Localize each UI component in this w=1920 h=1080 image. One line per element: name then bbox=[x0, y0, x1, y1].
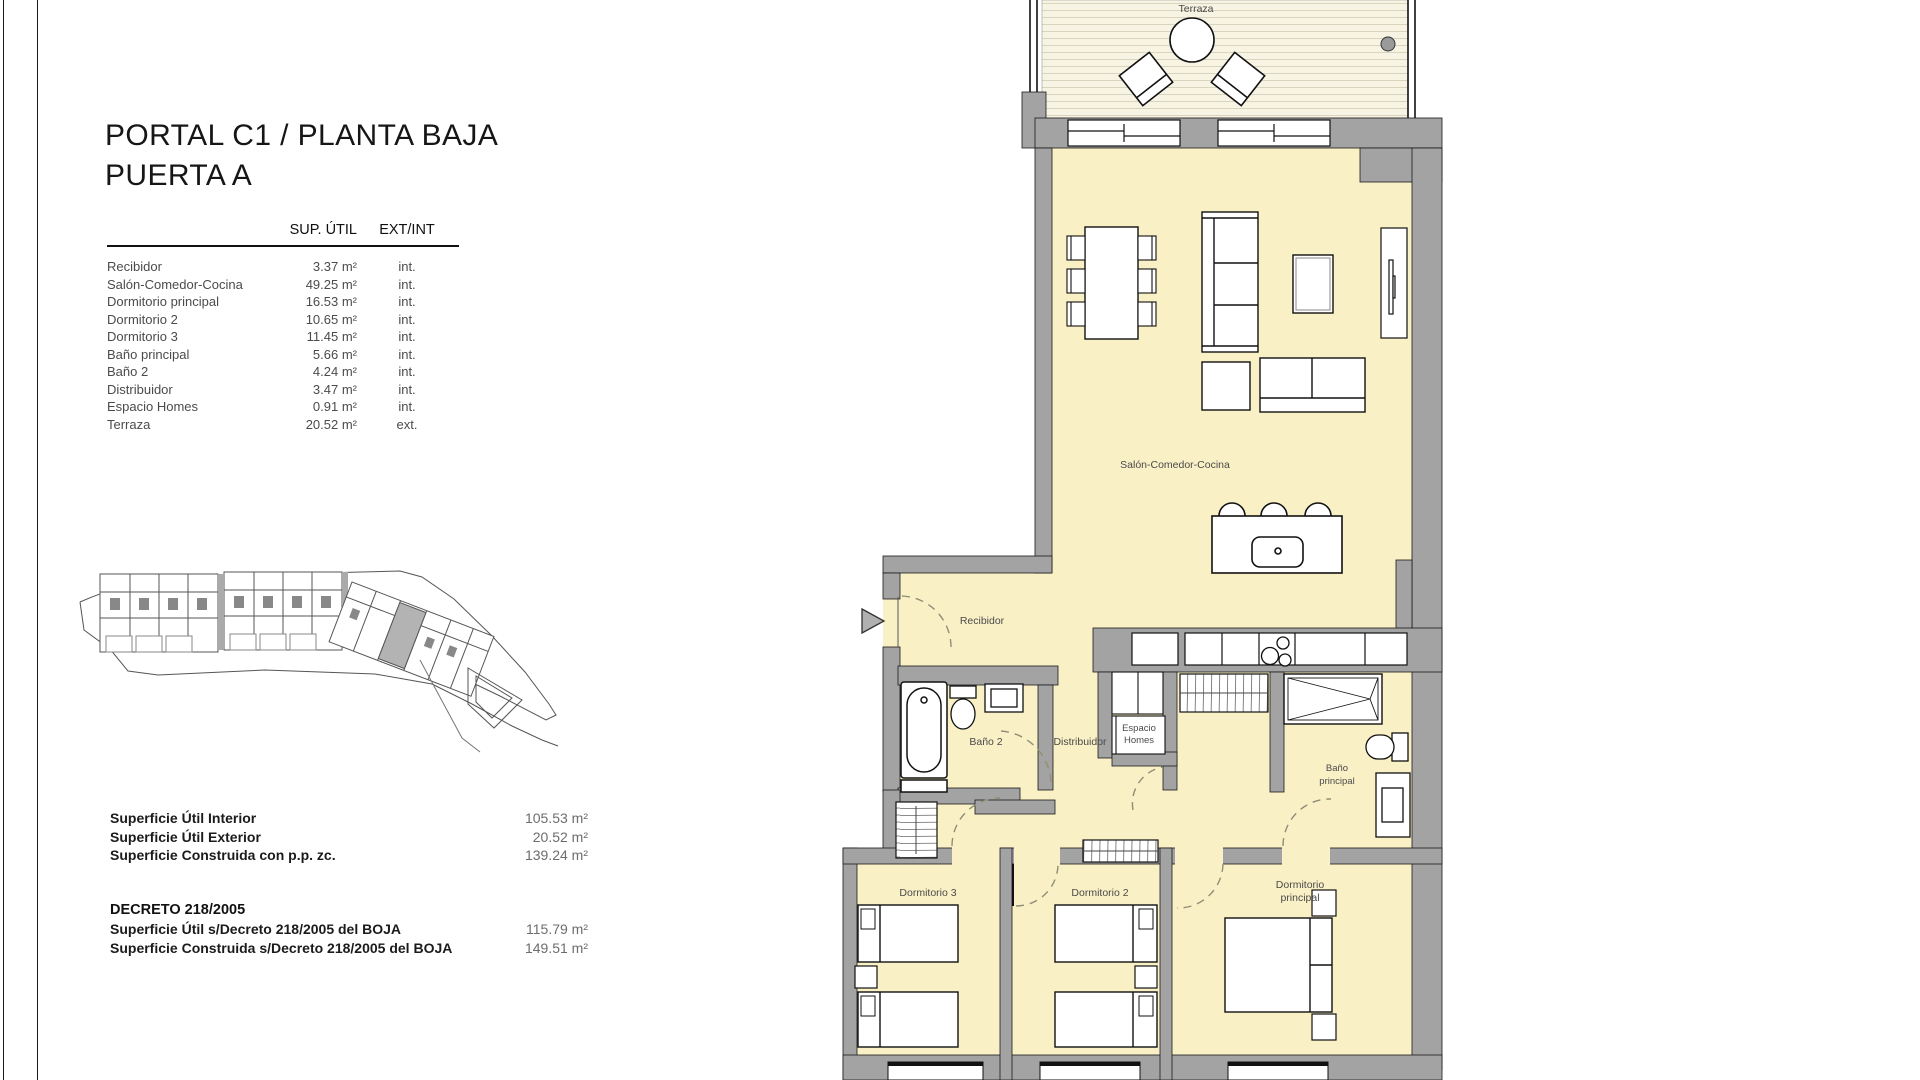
salon-label: Salón-Comedor-Cocina bbox=[1120, 459, 1230, 471]
room-name: Distribuidor bbox=[107, 381, 257, 399]
table-row: Recibidor3.37 m²int. bbox=[107, 258, 459, 276]
kitchen-counter bbox=[1132, 633, 1407, 666]
table-row: Distribuidor3.47 m²int. bbox=[107, 381, 459, 399]
areas-table-header: SUP. ÚTIL EXT/INT bbox=[107, 222, 459, 247]
room-extint: int. bbox=[357, 258, 457, 276]
room-extint: int. bbox=[357, 346, 457, 364]
entrance-arrow bbox=[862, 609, 884, 633]
building-wing bbox=[329, 582, 494, 696]
bed-single bbox=[858, 905, 958, 962]
decreto-row: Superficie Útil s/Decreto 218/2005 del B… bbox=[110, 920, 588, 939]
bed-single bbox=[1055, 992, 1157, 1047]
espacio-label-1: Espacio bbox=[1122, 723, 1156, 734]
decreto-heading: DECRETO 218/2005 bbox=[110, 901, 588, 920]
summary-row: Superficie Útil Exterior20.52 m² bbox=[110, 828, 588, 847]
table-row: Espacio Homes0.91 m²int. bbox=[107, 398, 459, 416]
room-area: 3.47 m² bbox=[257, 381, 357, 399]
room-name: Dormitorio 3 bbox=[107, 328, 257, 346]
summary-label: Superficie Útil Interior bbox=[110, 809, 525, 828]
room-area: 11.45 m² bbox=[257, 328, 357, 346]
title-line-2: PUERTA A bbox=[105, 156, 498, 196]
terrace-round-table bbox=[1170, 18, 1214, 62]
room-extint: int. bbox=[357, 276, 457, 294]
room-extint: int. bbox=[357, 398, 457, 416]
building-block bbox=[100, 574, 218, 652]
title-line-1: PORTAL C1 / PLANTA BAJA bbox=[105, 116, 498, 156]
room-extint: int. bbox=[357, 381, 457, 399]
bed-single bbox=[1055, 905, 1157, 962]
pool-area bbox=[468, 668, 522, 728]
decreto-value: 149.51 m² bbox=[525, 939, 588, 958]
terraza-label: Terraza bbox=[1178, 3, 1213, 15]
room-extint: int. bbox=[357, 363, 457, 381]
dormppal-label-1: Dormitorio bbox=[1276, 879, 1325, 891]
table-row: Dormitorio principal16.53 m²int. bbox=[107, 293, 459, 311]
bed-single bbox=[858, 992, 958, 1047]
summary-label: Superficie Útil Exterior bbox=[110, 828, 533, 847]
room-area: 49.25 m² bbox=[257, 276, 357, 294]
nightstand bbox=[1135, 966, 1157, 988]
room-area: 20.52 m² bbox=[257, 416, 357, 434]
toilet bbox=[950, 686, 976, 729]
page-title: PORTAL C1 / PLANTA BAJA PUERTA A bbox=[105, 116, 498, 196]
bathtub bbox=[901, 682, 947, 792]
recibidor-label: Recibidor bbox=[960, 615, 1005, 627]
room-name: Terraza bbox=[107, 416, 257, 434]
room-area: 4.24 m² bbox=[257, 363, 357, 381]
sheet-border-line bbox=[37, 0, 38, 1080]
decreto-row: Superficie Construida s/Decreto 218/2005… bbox=[110, 939, 588, 958]
table-row: Dormitorio 311.45 m²int. bbox=[107, 328, 459, 346]
header-sup-util: SUP. ÚTIL bbox=[257, 222, 357, 238]
room-name: Baño 2 bbox=[107, 363, 257, 381]
nightstand bbox=[855, 966, 877, 988]
banoppal-label-2: principal bbox=[1319, 776, 1354, 787]
dormppal-label-2: principal bbox=[1280, 892, 1319, 904]
sheet-border-line bbox=[3, 0, 4, 1080]
bathroom-sink bbox=[985, 684, 1023, 712]
table-row: Dormitorio 210.65 m²int. bbox=[107, 311, 459, 329]
room-area: 3.37 m² bbox=[257, 258, 357, 276]
room-name: Baño principal bbox=[107, 346, 257, 364]
room-area: 5.66 m² bbox=[257, 346, 357, 364]
room-area: 16.53 m² bbox=[257, 293, 357, 311]
toilet bbox=[1366, 733, 1408, 761]
decreto-block: DECRETO 218/2005 Superficie Útil s/Decre… bbox=[110, 901, 588, 957]
building-block bbox=[224, 572, 342, 650]
summary-label: Superficie Construida con p.p. zc. bbox=[110, 846, 525, 865]
room-extint: int. bbox=[357, 293, 457, 311]
decreto-label: Superficie Construida s/Decreto 218/2005… bbox=[110, 939, 525, 958]
areas-table-body: Recibidor3.37 m²int. Salón-Comedor-Cocin… bbox=[107, 258, 459, 433]
room-extint: ext. bbox=[357, 416, 457, 434]
room-extint: int. bbox=[357, 311, 457, 329]
drain-dot bbox=[1381, 37, 1395, 51]
room-area: 10.65 m² bbox=[257, 311, 357, 329]
room-name: Dormitorio principal bbox=[107, 293, 257, 311]
header-ext-int: EXT/INT bbox=[357, 222, 457, 238]
room-area: 0.91 m² bbox=[257, 398, 357, 416]
room-name: Salón-Comedor-Cocina bbox=[107, 276, 257, 294]
shower bbox=[1284, 674, 1382, 724]
espacio-label-2: Homes bbox=[1124, 735, 1154, 746]
table-row: Baño principal5.66 m²int. bbox=[107, 346, 459, 364]
floor-plan: Terraza bbox=[690, 0, 1490, 1080]
sofa-short bbox=[1260, 358, 1365, 412]
bed-double bbox=[1225, 918, 1332, 1012]
summary-row: Superficie Útil Interior105.53 m² bbox=[110, 809, 588, 828]
side-table bbox=[1202, 362, 1250, 410]
plan-sheet: { "header": { "title_line1": "PORTAL C1 … bbox=[0, 0, 1920, 1080]
wardrobe bbox=[896, 802, 937, 858]
island-faucet bbox=[1275, 548, 1281, 554]
room-name: Dormitorio 2 bbox=[107, 311, 257, 329]
bedroom-window bbox=[888, 1062, 1328, 1080]
building-connector bbox=[218, 574, 224, 650]
header-spacer bbox=[107, 222, 257, 238]
dorm2-label: Dormitorio 2 bbox=[1071, 887, 1128, 899]
decreto-label: Superficie Útil s/Decreto 218/2005 del B… bbox=[110, 920, 526, 939]
summary-value: 20.52 m² bbox=[533, 828, 588, 847]
summary-value: 139.24 m² bbox=[525, 846, 588, 865]
surface-summary: Superficie Útil Interior105.53 m² Superf… bbox=[110, 809, 588, 865]
room-name: Recibidor bbox=[107, 258, 257, 276]
wardrobe bbox=[1083, 840, 1158, 862]
kitchen-island bbox=[1212, 503, 1342, 573]
wardrobe bbox=[1180, 674, 1268, 712]
table-row: Baño 24.24 m²int. bbox=[107, 363, 459, 381]
coffee-table bbox=[1293, 255, 1333, 313]
vanity bbox=[1376, 773, 1410, 837]
sofa-long bbox=[1202, 212, 1258, 352]
table-row: Salón-Comedor-Cocina49.25 m²int. bbox=[107, 276, 459, 294]
nightstand bbox=[1312, 1014, 1336, 1040]
table-row: Terraza20.52 m²ext. bbox=[107, 416, 459, 434]
dining-set bbox=[1067, 227, 1156, 339]
summary-value: 105.53 m² bbox=[525, 809, 588, 828]
summary-row: Superficie Construida con p.p. zc.139.24… bbox=[110, 846, 588, 865]
dorm3-label: Dormitorio 3 bbox=[899, 887, 956, 899]
room-extint: int. bbox=[357, 328, 457, 346]
site-key-plan bbox=[70, 552, 640, 757]
areas-table: SUP. ÚTIL EXT/INT Recibidor3.37 m²int. S… bbox=[107, 222, 459, 433]
tv-unit bbox=[1381, 228, 1407, 338]
decreto-value: 115.79 m² bbox=[526, 920, 588, 939]
distribuidor-label: Distribuidor bbox=[1053, 736, 1107, 748]
banoppal-label-1: Baño bbox=[1326, 763, 1348, 774]
room-name: Espacio Homes bbox=[107, 398, 257, 416]
bano2-label: Baño 2 bbox=[969, 736, 1002, 748]
